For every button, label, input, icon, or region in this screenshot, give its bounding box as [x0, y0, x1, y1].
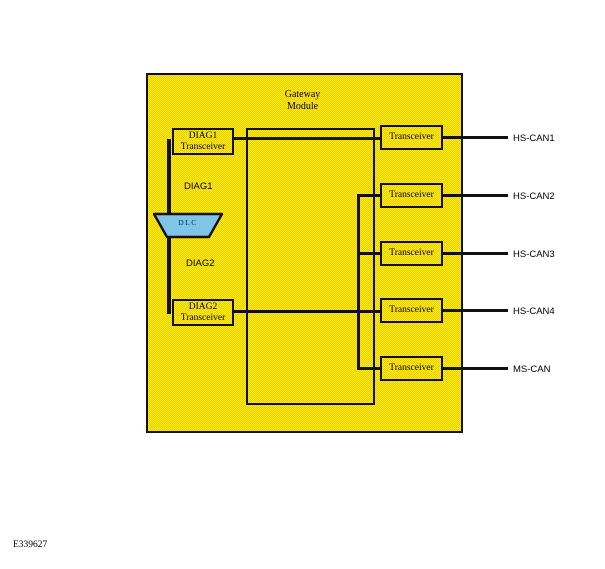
bus-label-hs-can2: HS-CAN2: [513, 191, 583, 202]
wire-diag2-to-transceiver4: [232, 310, 383, 313]
wire-out-hs-can1: [441, 136, 508, 139]
wire-out-hs-can4: [441, 309, 508, 312]
wire-internal-bus-vertical: [357, 194, 360, 370]
gateway-module-title-line1: Gateway: [146, 89, 459, 101]
wire-label-diag2: DIAG2: [186, 258, 215, 269]
transceiver4-box: Transceiver: [380, 298, 443, 323]
figure-id: E339627: [13, 540, 47, 550]
diag1-transceiver-line2: Transceiver: [174, 142, 232, 153]
wire-label-diag1: DIAG1: [184, 181, 213, 192]
bus-label-hs-can1: HS-CAN1: [513, 133, 583, 144]
diag1-transceiver-box: DIAG1 Transceiver: [172, 128, 234, 155]
wire-out-ms-can: [441, 367, 508, 370]
diag2-transceiver-line1: DIAG2: [174, 302, 232, 313]
diag1-transceiver-line1: DIAG1: [174, 131, 232, 142]
dlc-label: DLC: [149, 218, 227, 227]
wire-diag1-to-transceiver1: [232, 137, 383, 140]
diag2-transceiver-box: DIAG2 Transceiver: [172, 299, 234, 326]
diagram-canvas: Gateway Module DIAG1 Transceiver DIAG2 T…: [0, 0, 605, 569]
gateway-module-title-line2: Module: [146, 101, 459, 113]
diag2-transceiver-line2: Transceiver: [174, 313, 232, 324]
bus-label-hs-can3: HS-CAN3: [513, 249, 583, 260]
transceiver2-box: Transceiver: [380, 183, 443, 208]
transceiver5-box: Transceiver: [380, 356, 443, 381]
gateway-inner-rect: [246, 128, 375, 405]
wire-out-hs-can2: [441, 194, 508, 197]
transceiver1-box: Transceiver: [380, 125, 443, 150]
bus-label-hs-can4: HS-CAN4: [513, 306, 583, 317]
wire-out-hs-can3: [441, 252, 508, 255]
gateway-module-title: Gateway Module: [146, 89, 459, 113]
bus-label-ms-can: MS-CAN: [513, 364, 583, 375]
transceiver3-box: Transceiver: [380, 241, 443, 266]
